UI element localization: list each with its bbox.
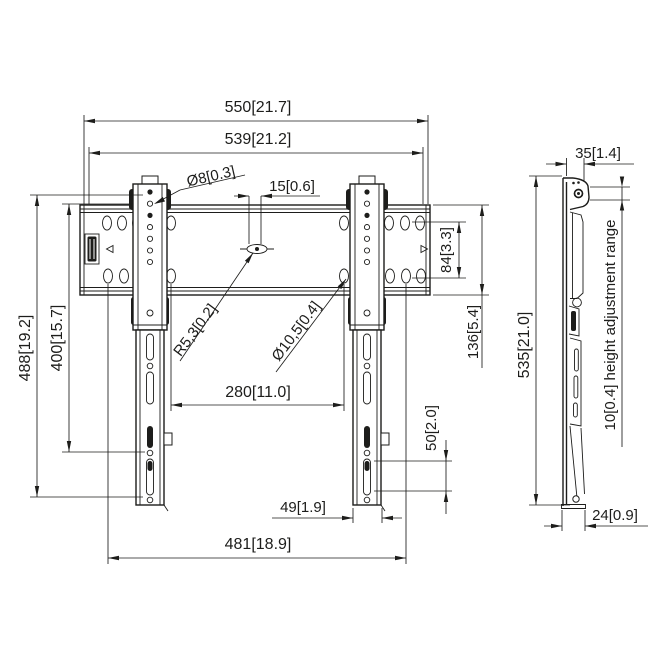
technical-drawing: 550[21.7] 539[21.2] Ø8[0.3] 15[0.6] [0, 0, 652, 652]
dim-slot-width-label: 15[0.6] [269, 178, 315, 195]
dim-inner-hole-span: 280[11.0] [171, 284, 344, 411]
dim-height: 535[21.0] [516, 176, 570, 505]
dim-bracket-width-label: 49[1.9] [280, 499, 326, 516]
label-radius-text: R5,3[0.2] [170, 301, 220, 360]
dim-top-depth-label: 35[1.4] [575, 145, 621, 162]
dim-bottom-depth-label: 24[0.9] [592, 507, 638, 524]
dim-rail-width-label: 539[21.2] [225, 131, 292, 148]
label-height-adjustment: 10[0.4] height adjustment range [590, 177, 630, 448]
dim-vesa-height-label: 400[15.7] [49, 305, 66, 372]
label-height-adjustment-text: 10[0.4] height adjustment range [602, 220, 619, 431]
dim-inner-hole-span-label: 280[11.0] [225, 384, 291, 401]
dim-slot-pitch-label: 50[2.0] [423, 405, 440, 451]
dim-bracket-width: 49[1.9] [272, 499, 402, 523]
left-bracket [129, 176, 172, 511]
technical-drawing-page: 550[21.7] 539[21.2] Ø8[0.3] 15[0.6] [0, 0, 652, 652]
dim-hole-rows-label: 84[3.3] [438, 227, 455, 273]
dim-rail-height-label: 136[5.4] [465, 305, 482, 359]
dim-bottom-depth: 24[0.9] [544, 507, 648, 531]
side-view: 35[1.4] 535[21.0] 10[0.4] height adjustm… [516, 145, 648, 531]
dim-outer-hole-span-label: 481[18.9] [225, 536, 292, 553]
side-profile [562, 178, 590, 509]
dim-height-label: 535[21.0] [516, 312, 533, 379]
dim-total-height-label: 488[19.2] [17, 315, 34, 382]
dim-slot-pitch: 50[2.0] [374, 405, 452, 514]
dim-overall-width-label: 550[21.7] [225, 99, 292, 116]
label-hole-dia-large-text: Ø10,5[0.4] [269, 298, 325, 364]
front-view: 550[21.7] 539[21.2] Ø8[0.3] 15[0.6] [17, 99, 489, 564]
label-hole-dia-text: Ø8[0.3] [185, 163, 237, 191]
